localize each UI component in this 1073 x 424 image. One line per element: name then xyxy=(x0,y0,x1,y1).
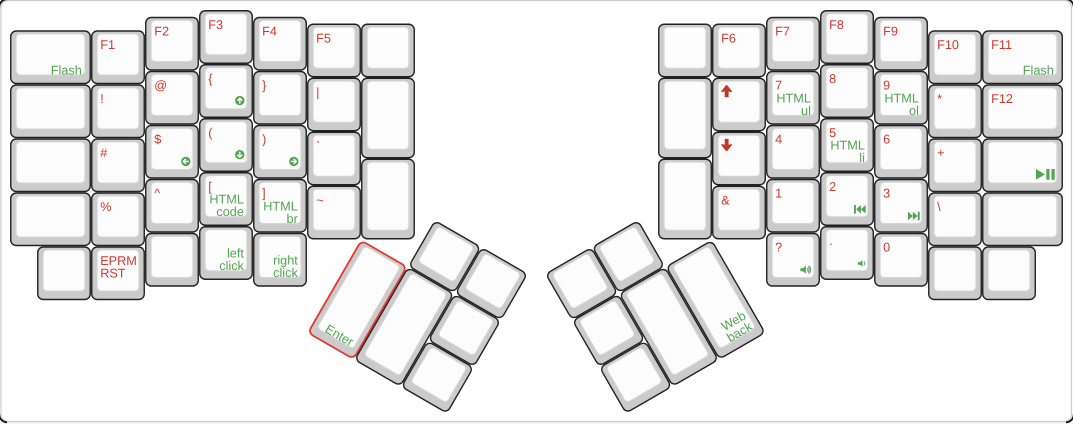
svg-text:!: ! xyxy=(100,92,104,106)
svg-text:F5: F5 xyxy=(316,31,331,45)
svg-text:ol: ol xyxy=(909,104,919,118)
svg-text:|: | xyxy=(316,85,319,99)
svg-text:Flash: Flash xyxy=(51,63,82,77)
svg-text:F6: F6 xyxy=(721,31,736,45)
svg-text:}: } xyxy=(262,79,267,93)
svg-text:F8: F8 xyxy=(829,18,844,32)
svg-text:ul: ul xyxy=(801,104,811,118)
svg-text:F11: F11 xyxy=(991,38,1012,52)
svg-text:[: [ xyxy=(208,180,212,194)
svg-text:0: 0 xyxy=(883,241,890,255)
svg-text:4: 4 xyxy=(775,133,782,147)
svg-text:{: { xyxy=(208,72,213,86)
svg-text:~: ~ xyxy=(316,193,323,207)
svg-text:^: ^ xyxy=(154,187,160,201)
svg-text:F1: F1 xyxy=(100,38,115,52)
svg-text:): ) xyxy=(262,133,266,147)
svg-text:code: code xyxy=(216,205,244,219)
svg-text:1: 1 xyxy=(775,187,782,201)
svg-text:3: 3 xyxy=(883,187,890,201)
svg-text:\: \ xyxy=(937,200,941,214)
svg-text:li: li xyxy=(859,151,865,165)
svg-text:Flash: Flash xyxy=(1023,63,1054,77)
svg-text:br: br xyxy=(287,212,299,226)
svg-text:?: ? xyxy=(775,241,782,255)
svg-text:5: 5 xyxy=(829,126,836,140)
svg-text:#: # xyxy=(100,146,107,160)
svg-text:+: + xyxy=(937,146,944,160)
svg-text:&: & xyxy=(721,193,730,207)
svg-text:6: 6 xyxy=(883,133,890,147)
svg-text:click: click xyxy=(273,266,298,280)
svg-text:@: @ xyxy=(154,79,167,93)
svg-text:`: ` xyxy=(316,139,320,153)
svg-text:click: click xyxy=(219,259,244,273)
svg-text:RST: RST xyxy=(100,267,126,281)
svg-text:8: 8 xyxy=(829,72,836,86)
svg-text:F12: F12 xyxy=(991,92,1013,106)
svg-text:F9: F9 xyxy=(883,25,898,39)
svg-text:$: $ xyxy=(154,133,161,147)
svg-text:F7: F7 xyxy=(775,25,790,39)
svg-text:.: . xyxy=(829,234,833,248)
svg-text:F4: F4 xyxy=(262,25,277,39)
svg-text:F10: F10 xyxy=(937,38,959,52)
svg-text:F2: F2 xyxy=(154,25,169,39)
svg-text:F3: F3 xyxy=(208,18,223,32)
svg-text:2: 2 xyxy=(829,180,836,194)
svg-text:%: % xyxy=(100,200,111,214)
svg-text:*: * xyxy=(937,92,942,106)
